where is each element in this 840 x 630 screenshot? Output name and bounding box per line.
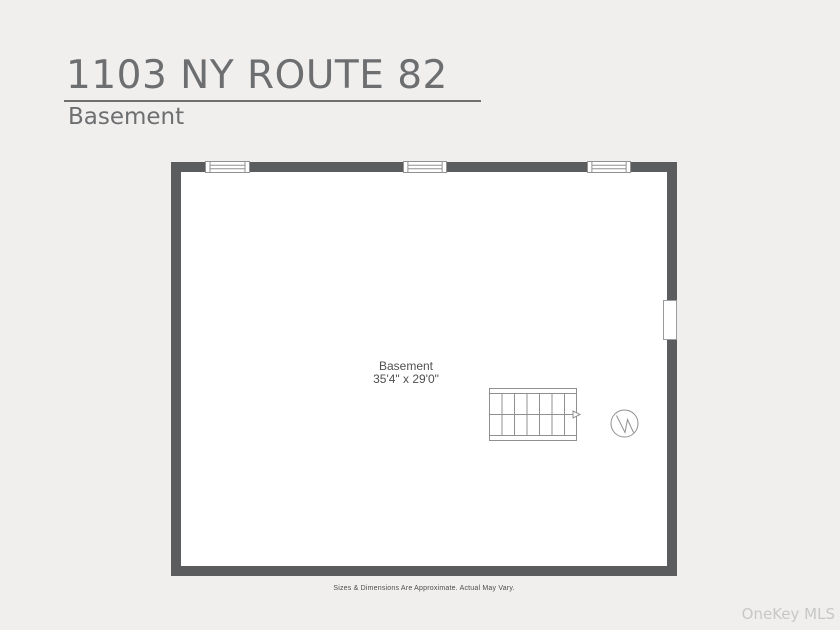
water-heater-icon bbox=[609, 408, 640, 439]
window-icon bbox=[403, 161, 447, 173]
page-title: 1103 NY ROUTE 82 bbox=[66, 56, 448, 95]
door-opening-icon bbox=[663, 300, 677, 340]
floorplan-sheet: 1103 NY ROUTE 82 Basement bbox=[0, 0, 840, 630]
staircase-icon bbox=[489, 388, 584, 442]
disclaimer-text: Sizes & Dimensions Are Approximate. Actu… bbox=[171, 585, 677, 592]
title-underline bbox=[64, 100, 481, 102]
room-label: Basement 35'4" x 29'0" bbox=[373, 360, 439, 386]
floor-subtitle: Basement bbox=[68, 105, 184, 130]
basement-floorplan: Basement 35'4" x 29'0" bbox=[171, 162, 677, 576]
watermark-text: OneKey MLS bbox=[742, 605, 835, 623]
window-icon bbox=[205, 161, 250, 173]
window-icon bbox=[587, 161, 631, 173]
room-dimensions: 35'4" x 29'0" bbox=[373, 373, 439, 386]
